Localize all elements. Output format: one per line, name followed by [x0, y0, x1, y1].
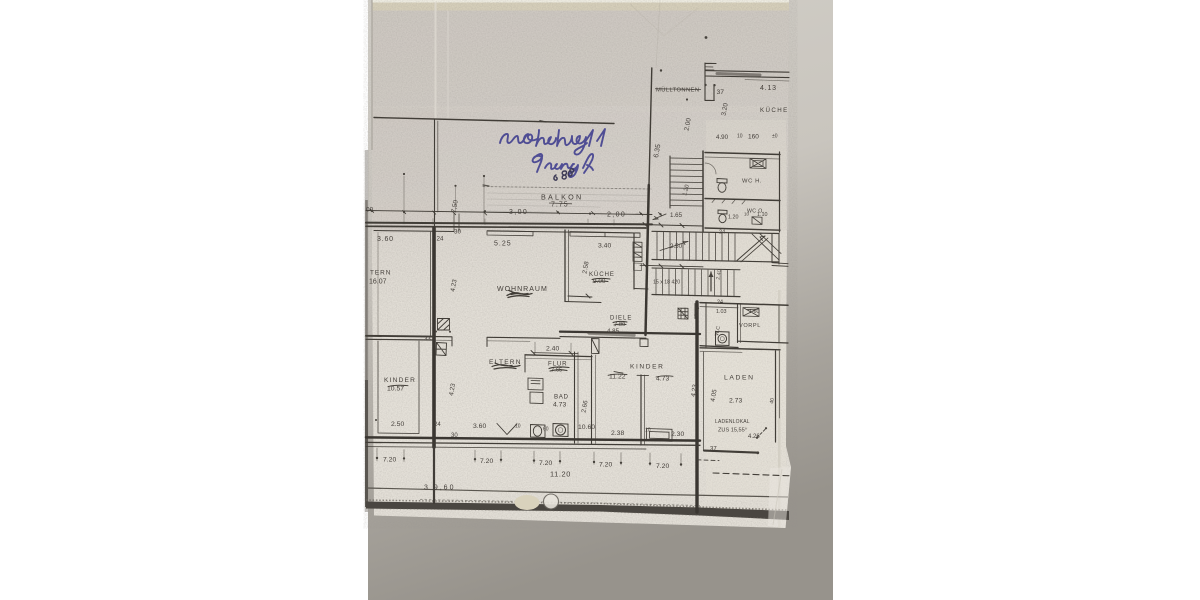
svg-text:30: 30: [454, 229, 461, 236]
svg-text:7.20: 7.20: [656, 463, 669, 470]
svg-text:15 x 18 420: 15 x 18 420: [653, 280, 680, 286]
svg-text:37: 37: [710, 447, 717, 453]
svg-text:7.20: 7.20: [383, 457, 396, 464]
svg-text:1.60: 1.60: [749, 309, 760, 315]
svg-text:10.60: 10.60: [578, 424, 595, 431]
svg-text:2.50: 2.50: [391, 421, 404, 428]
svg-text:KINDER: KINDER: [384, 377, 416, 384]
svg-text:WC H.: WC H.: [742, 179, 762, 185]
svg-text:ZUS 15,55°: ZUS 15,55°: [718, 428, 747, 434]
svg-text:7.20: 7.20: [480, 458, 493, 465]
svg-text:40: 40: [769, 398, 776, 405]
svg-text:4.13: 4.13: [760, 85, 777, 92]
svg-text:KINDER: KINDER: [630, 364, 665, 371]
svg-text:1.03: 1.03: [716, 309, 727, 315]
svg-text:VORPL: VORPL: [739, 323, 761, 329]
svg-text:4.90: 4.90: [716, 134, 729, 141]
svg-text:60: 60: [543, 427, 549, 433]
svg-text:1.65: 1.65: [670, 212, 683, 219]
svg-text:KÜCHE: KÜCHE: [589, 271, 615, 278]
svg-text:DIELE: DIELE: [610, 316, 632, 322]
svg-text:11.20: 11.20: [550, 470, 571, 479]
svg-text:WOHNRAUM: WOHNRAUM: [497, 286, 548, 293]
svg-text:16.07: 16.07: [369, 279, 387, 286]
svg-text:1.20: 1.20: [728, 215, 739, 221]
svg-text:KÜCHE: KÜCHE: [760, 107, 789, 114]
svg-text:LADENLOKAL: LADENLOKAL: [715, 419, 750, 425]
svg-text:37: 37: [717, 89, 725, 96]
svg-text:160: 160: [748, 134, 759, 141]
svg-text:5.25: 5.25: [494, 241, 512, 248]
svg-text:2,00: 2,00: [607, 212, 626, 219]
svg-text:7.75: 7.75: [551, 202, 569, 209]
svg-text:4.26: 4.26: [748, 434, 760, 440]
svg-text:33: 33: [424, 337, 431, 343]
svg-text:2.38: 2.38: [611, 430, 624, 437]
svg-text:3.60: 3.60: [377, 236, 394, 243]
svg-text:4.85: 4.85: [607, 328, 620, 335]
svg-text:10: 10: [737, 134, 743, 140]
svg-text:4.73: 4.73: [553, 402, 566, 409]
svg-text:7.20: 7.20: [539, 460, 552, 467]
svg-text:10: 10: [645, 428, 651, 434]
svg-text:3.40: 3.40: [598, 243, 611, 250]
svg-text:BALKON: BALKON: [541, 193, 583, 202]
svg-text:BAD: BAD: [554, 394, 569, 401]
svg-text:7.20: 7.20: [599, 462, 612, 469]
svg-text:10: 10: [744, 212, 749, 217]
svg-text:24: 24: [719, 230, 725, 236]
svg-text:24: 24: [434, 422, 441, 428]
svg-text:MÜLLTONNEN: MÜLLTONNEN: [656, 87, 699, 94]
svg-text:10: 10: [515, 424, 521, 430]
svg-text:30: 30: [451, 433, 458, 439]
svg-text:2.40: 2.40: [546, 346, 559, 353]
svg-text:3,00: 3,00: [509, 209, 528, 216]
svg-text:TERN: TERN: [370, 270, 391, 277]
svg-text:2.73: 2.73: [729, 398, 742, 405]
svg-text:24: 24: [717, 300, 723, 306]
svg-text:3 9,60: 3 9,60: [424, 485, 455, 492]
svg-text:2.30: 2.30: [671, 431, 684, 438]
svg-text:3.60: 3.60: [473, 423, 486, 430]
svg-text:1.10: 1.10: [757, 212, 768, 218]
svg-text:LADEN: LADEN: [724, 375, 755, 382]
svg-text:00: 00: [366, 207, 374, 214]
svg-text:±0: ±0: [772, 134, 778, 140]
svg-text:24: 24: [437, 236, 444, 243]
svg-text:2.50: 2.50: [670, 243, 683, 250]
